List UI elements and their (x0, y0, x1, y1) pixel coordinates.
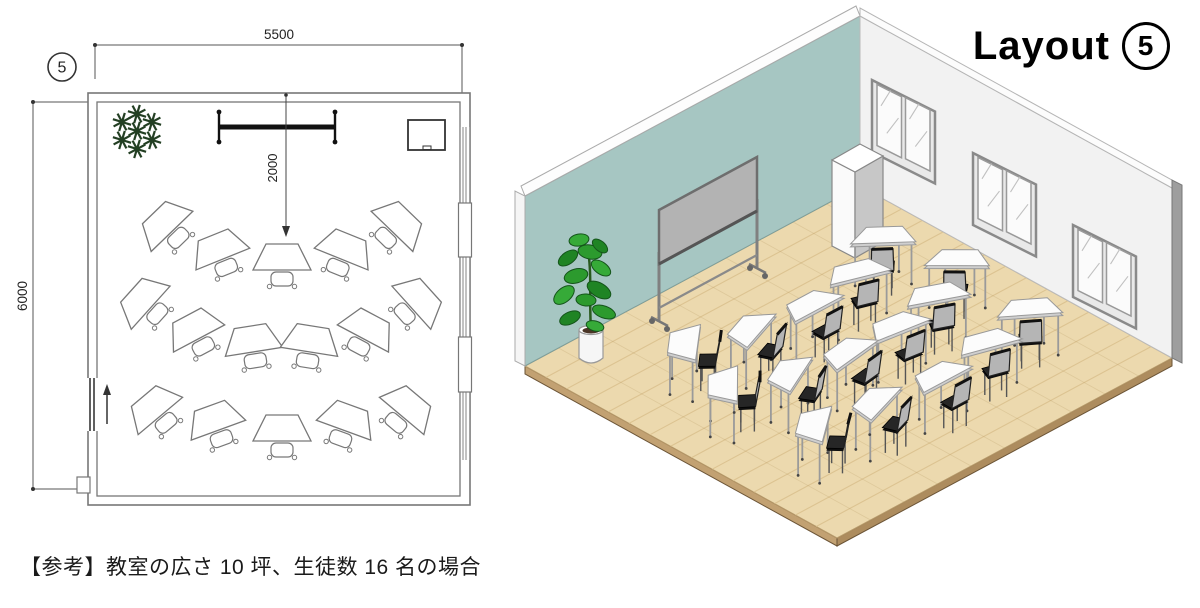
door (86, 378, 99, 431)
layout-title-number: 5 (1122, 22, 1170, 70)
plan-label-circle: 5 (48, 53, 76, 81)
chair-plan (271, 443, 293, 457)
window-pane (1107, 243, 1132, 316)
window-pane (1007, 171, 1032, 244)
window-pane (877, 85, 902, 158)
dimension-width-label: 5500 (264, 27, 294, 42)
chair-plan (243, 352, 267, 369)
layout-title: Layout 5 (973, 22, 1170, 70)
wall-notch (77, 477, 90, 493)
floor-plan: 5 5500 6000 (0, 0, 520, 552)
window-pane (906, 98, 931, 171)
chair-backrest (1019, 320, 1042, 343)
wall-pillar (459, 337, 472, 392)
window-pane (1078, 230, 1103, 303)
chair-plan (296, 352, 320, 369)
caption: 【参考】教室の広さ 10 坪、生徒数 16 名の場合 (20, 551, 481, 581)
plan-label-number: 5 (58, 60, 67, 77)
dimension-board-label: 2000 (265, 154, 280, 183)
layout-title-text: Layout (973, 24, 1110, 69)
chair-plan (271, 272, 293, 286)
dimension-depth (31, 100, 88, 491)
cabinet-plan (408, 120, 445, 150)
iso-view (500, 0, 1200, 608)
dimension-depth-label: 6000 (15, 281, 30, 311)
wall-pillar (459, 203, 472, 257)
screenshot-root: 5 5500 6000 (0, 0, 1200, 608)
window-pane (978, 158, 1003, 231)
